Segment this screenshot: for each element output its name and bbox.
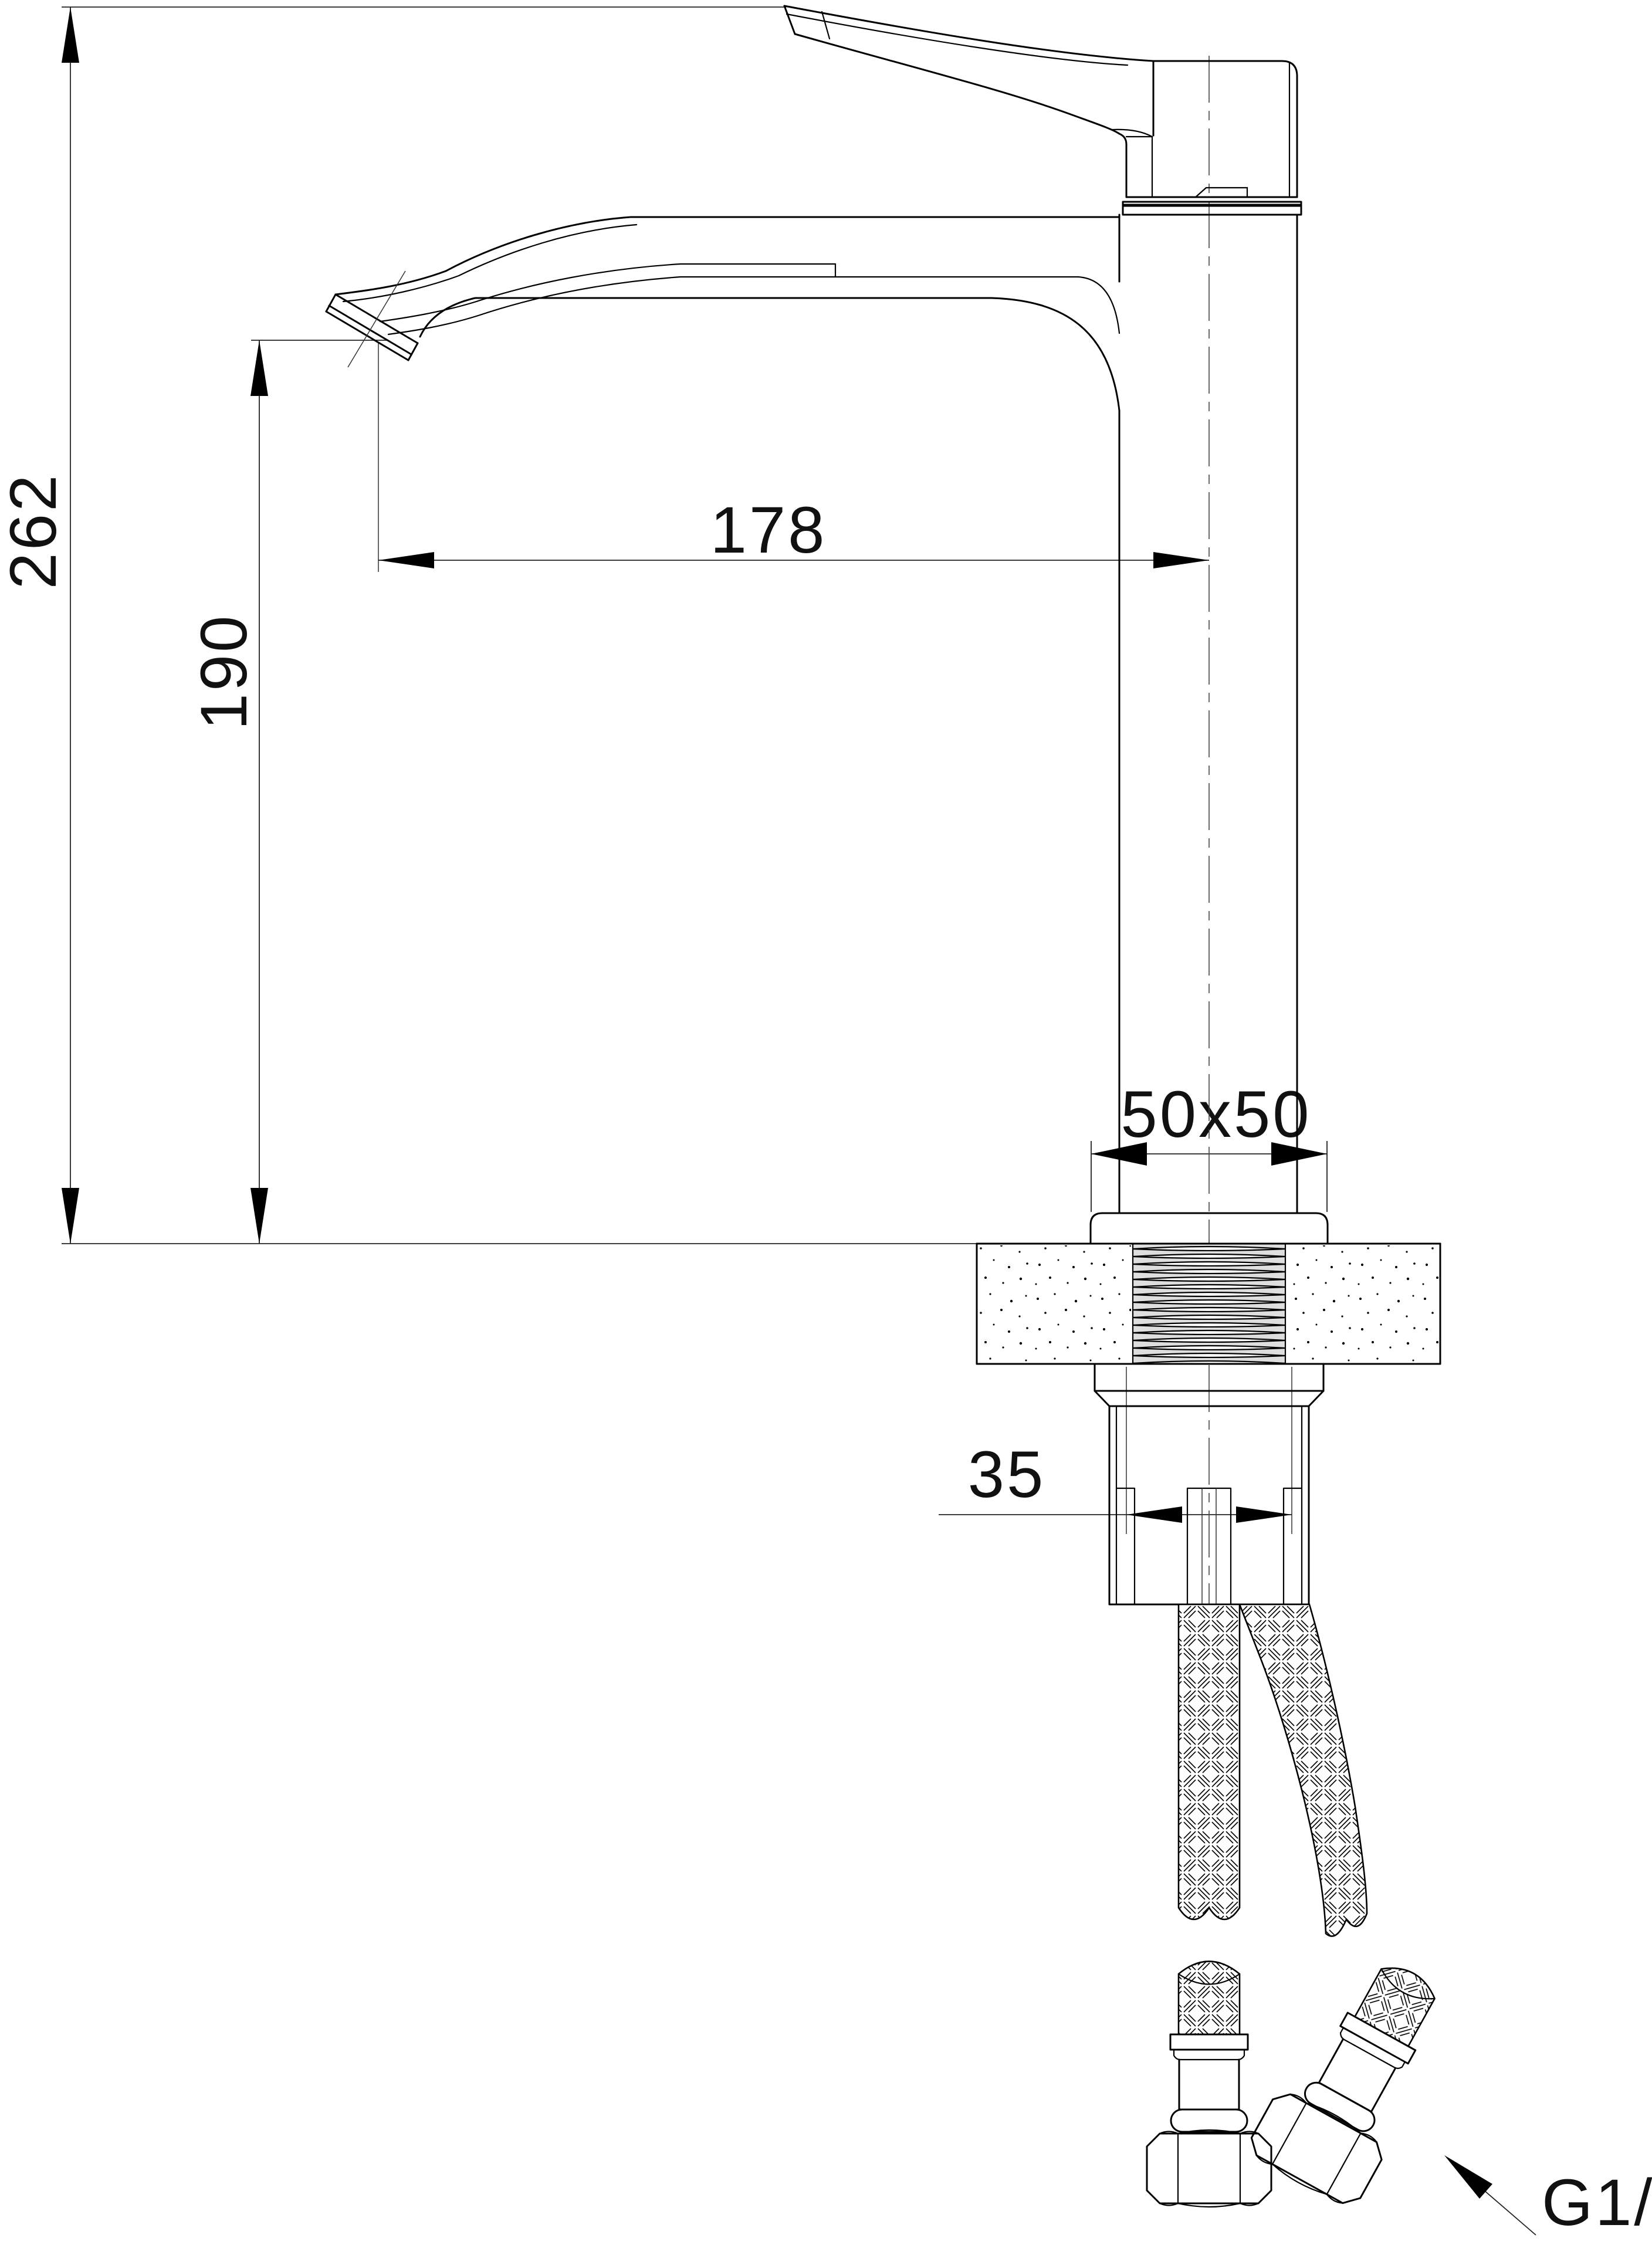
dim-label-50x50: 50x50: [1120, 1078, 1311, 1151]
dim-label-190: 190: [187, 614, 260, 730]
dimension-190-outlet-height: 190: [187, 340, 387, 1244]
dimension-262-total-height: 262: [0, 7, 786, 1244]
supply-hose-right: [1240, 1604, 1468, 2213]
callout-g12-thread: G1/2: [1444, 2155, 1652, 2239]
countertop-cross-section: [977, 1244, 1440, 1364]
faucet-body-column: [1119, 215, 1297, 1213]
dim-label-g12: G1/2: [1542, 2166, 1652, 2239]
technical-drawing-page: 262 190 178 50x50 35 G1/2: [0, 0, 1652, 2245]
dim-label-35: 35: [968, 1438, 1046, 1511]
threaded-shank: [1133, 1244, 1285, 1363]
faucet-neck-collar: [1123, 202, 1301, 215]
dim-label-262: 262: [0, 473, 70, 590]
faucet-spout: [326, 217, 1119, 411]
faucet-dimension-drawing: 262 190 178 50x50 35 G1/2: [0, 0, 1652, 2245]
dim-label-178: 178: [710, 493, 827, 567]
faucet-lever-handle: [784, 6, 1153, 197]
dimension-35-shank: 35: [939, 1367, 1292, 1534]
dimension-178-spout-reach: 178: [378, 343, 1209, 572]
supply-hose-left: [1147, 1604, 1271, 2207]
